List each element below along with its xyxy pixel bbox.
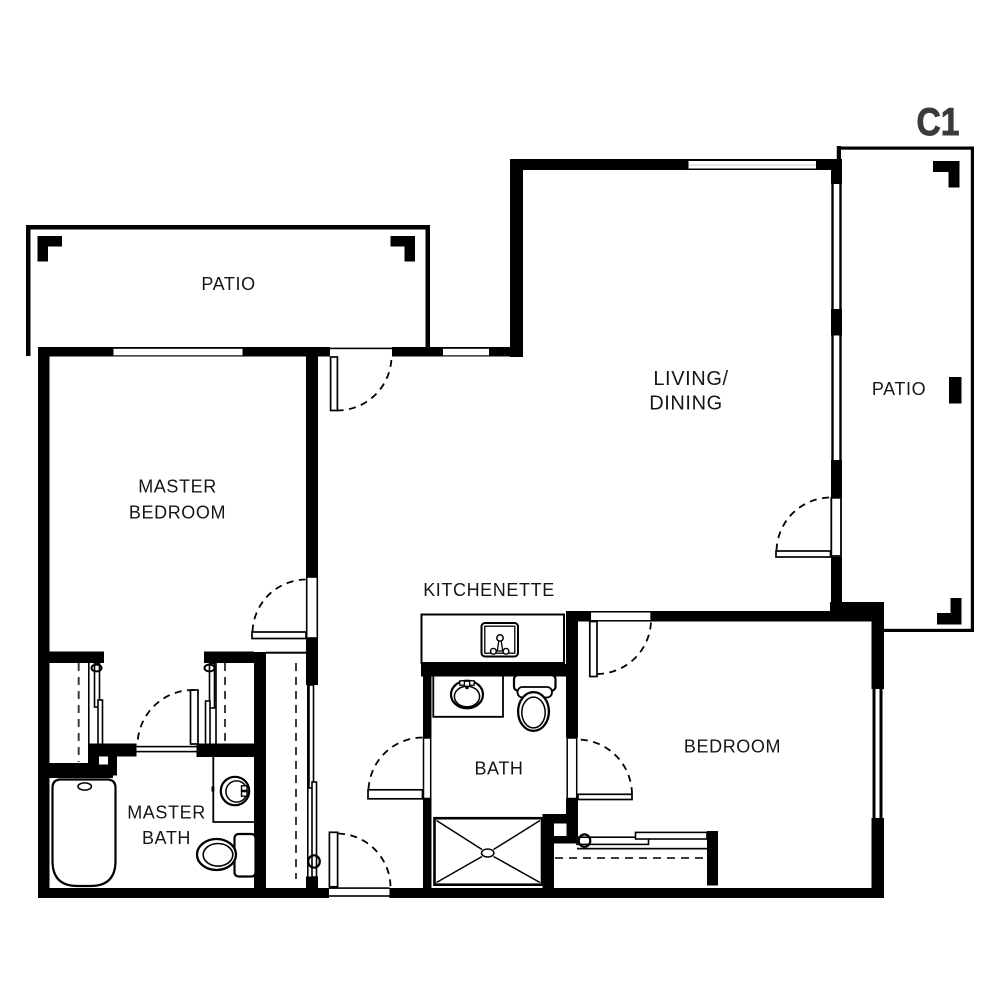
svg-text:KITCHENETTE: KITCHENETTE: [423, 580, 555, 600]
svg-text:DINING: DINING: [649, 393, 723, 415]
svg-text:MASTER: MASTER: [127, 803, 206, 823]
svg-text:PATIO: PATIO: [872, 379, 926, 399]
svg-text:BATH: BATH: [142, 828, 191, 848]
svg-text:C1: C1: [917, 101, 960, 144]
svg-text:MASTER: MASTER: [138, 477, 217, 497]
svg-text:PATIO: PATIO: [201, 274, 255, 294]
svg-text:BEDROOM: BEDROOM: [684, 737, 781, 757]
svg-text:BEDROOM: BEDROOM: [129, 503, 226, 523]
svg-text:LIVING/: LIVING/: [653, 368, 728, 390]
svg-text:BATH: BATH: [474, 759, 523, 779]
